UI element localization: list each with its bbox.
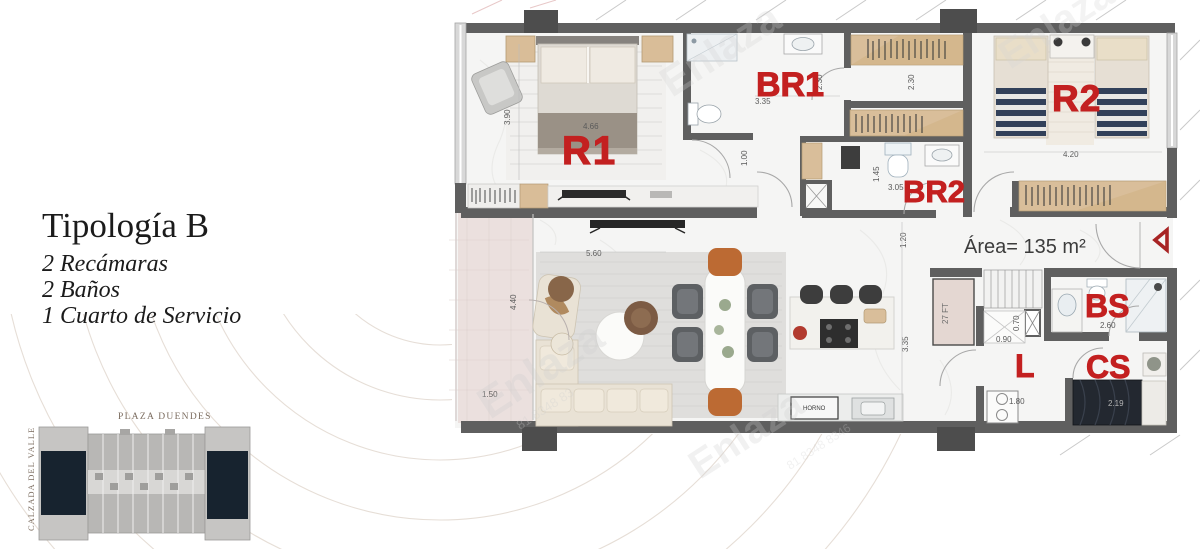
svg-text:2.19: 2.19 — [1108, 399, 1124, 408]
svg-text:2 Baños: 2 Baños — [42, 277, 120, 303]
svg-text:R2: R2 — [1052, 78, 1101, 119]
svg-text:Tipología B: Tipología B — [42, 206, 209, 245]
svg-text:4.40: 4.40 — [509, 294, 518, 310]
svg-text:BR2: BR2 — [903, 174, 965, 209]
svg-text:BS: BS — [1085, 288, 1129, 324]
svg-text:Área= 135 m²: Área= 135 m² — [964, 235, 1086, 258]
svg-text:1.80: 1.80 — [1009, 397, 1025, 406]
svg-text:CS: CS — [1086, 349, 1130, 385]
svg-text:HORNO: HORNO — [803, 406, 826, 412]
svg-text:0.70: 0.70 — [1012, 315, 1021, 331]
svg-text:2.30: 2.30 — [907, 74, 916, 90]
svg-text:3.90: 3.90 — [503, 109, 512, 125]
svg-text:CALZADA DEL VALLE: CALZADA DEL VALLE — [26, 427, 36, 531]
svg-text:3.05: 3.05 — [888, 183, 904, 192]
svg-text:0.90: 0.90 — [996, 335, 1012, 344]
svg-text:27 FT: 27 FT — [941, 303, 950, 324]
svg-text:4.20: 4.20 — [1063, 150, 1079, 159]
svg-text:1 Cuarto de Servicio: 1 Cuarto de Servicio — [42, 303, 241, 329]
svg-text:1.00: 1.00 — [740, 150, 749, 166]
svg-text:3.35: 3.35 — [901, 336, 910, 352]
svg-text:R1: R1 — [562, 129, 617, 173]
svg-text:L: L — [1015, 348, 1035, 384]
svg-text:PLAZA DUENDES: PLAZA DUENDES — [118, 412, 212, 422]
svg-text:2 Recámaras: 2 Recámaras — [42, 251, 168, 277]
svg-text:BR1: BR1 — [756, 66, 824, 104]
svg-text:1.45: 1.45 — [872, 166, 881, 182]
svg-text:1.20: 1.20 — [899, 232, 908, 248]
svg-text:5.60: 5.60 — [586, 249, 602, 258]
